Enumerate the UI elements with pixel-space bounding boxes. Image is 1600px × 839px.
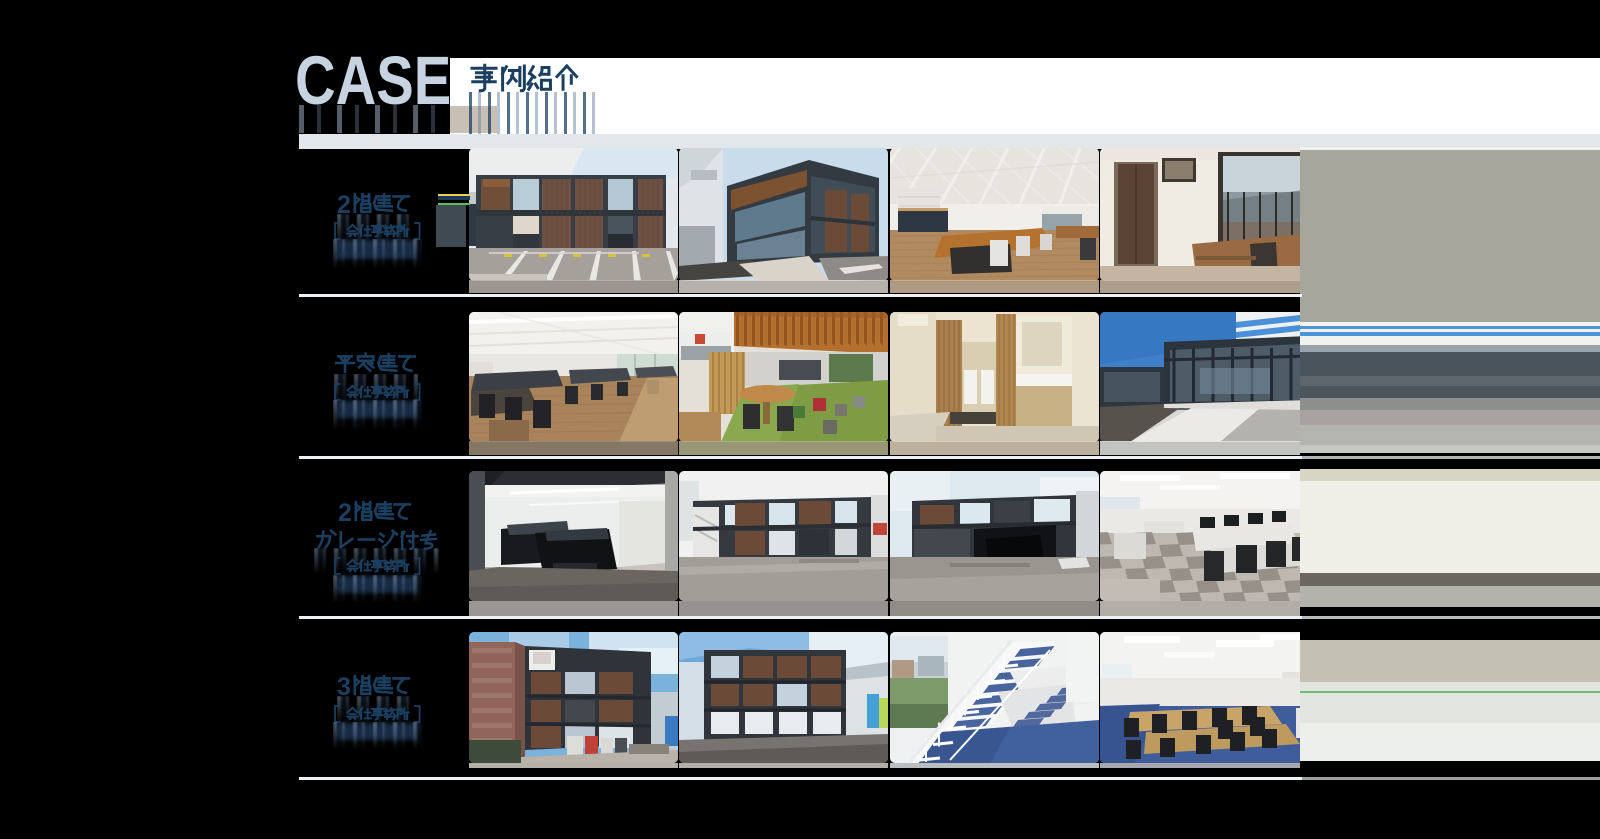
svg-text:2: 2	[338, 499, 352, 527]
svg-text:3: 3	[337, 673, 351, 701]
svg-text:2: 2	[337, 191, 351, 219]
